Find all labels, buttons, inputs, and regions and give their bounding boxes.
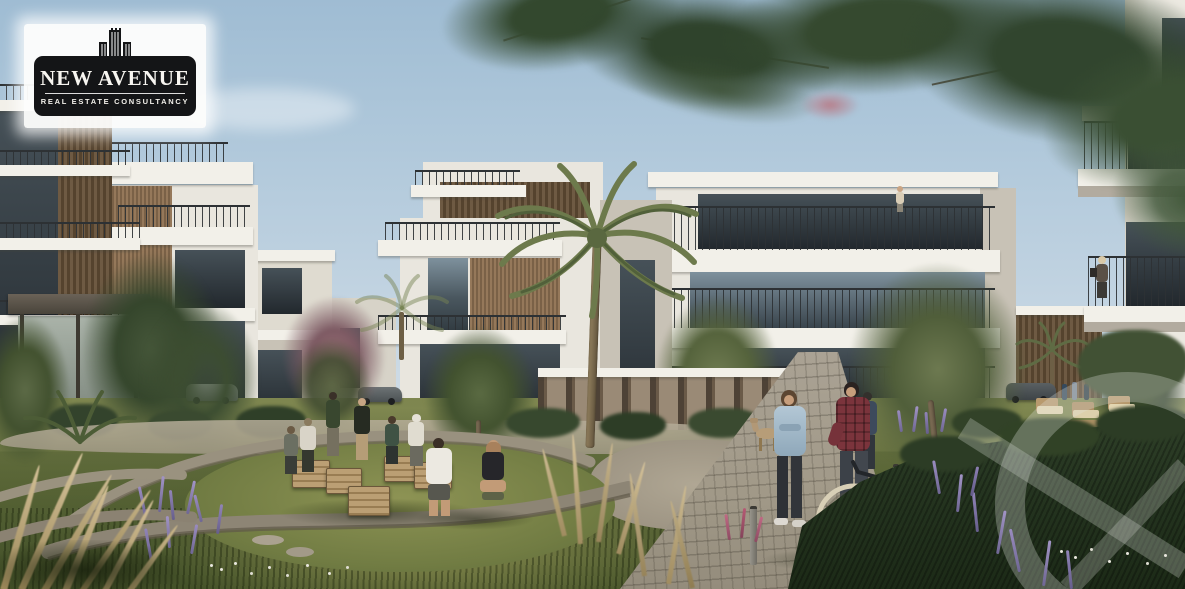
logo-badge: NEW AVENUE REAL ESTATE CONSULTANCY	[34, 56, 196, 116]
plume-grass-foreground	[0, 420, 180, 589]
logo: NEW AVENUE REAL ESTATE CONSULTANCY	[24, 24, 206, 128]
skyscraper-icon	[98, 28, 132, 56]
logo-divider	[45, 93, 184, 94]
person-seated	[383, 416, 401, 466]
daisies	[210, 556, 360, 586]
logo-subtitle: REAL ESTATE CONSULTANCY	[41, 97, 189, 106]
logo-title: NEW AVENUE	[40, 68, 190, 89]
person-seated-foreground	[478, 440, 512, 516]
compound-rendering: NEW AVENUE REAL ESTATE CONSULTANCY	[0, 0, 1185, 589]
daisies	[1060, 540, 1180, 580]
crate-table	[348, 486, 390, 516]
ornamental-grass	[556, 428, 736, 588]
person-seated	[298, 418, 318, 476]
person-standing	[352, 398, 372, 460]
blossom-accent	[800, 90, 860, 120]
person-standing	[324, 392, 342, 456]
person-seated-foreground	[422, 438, 456, 518]
